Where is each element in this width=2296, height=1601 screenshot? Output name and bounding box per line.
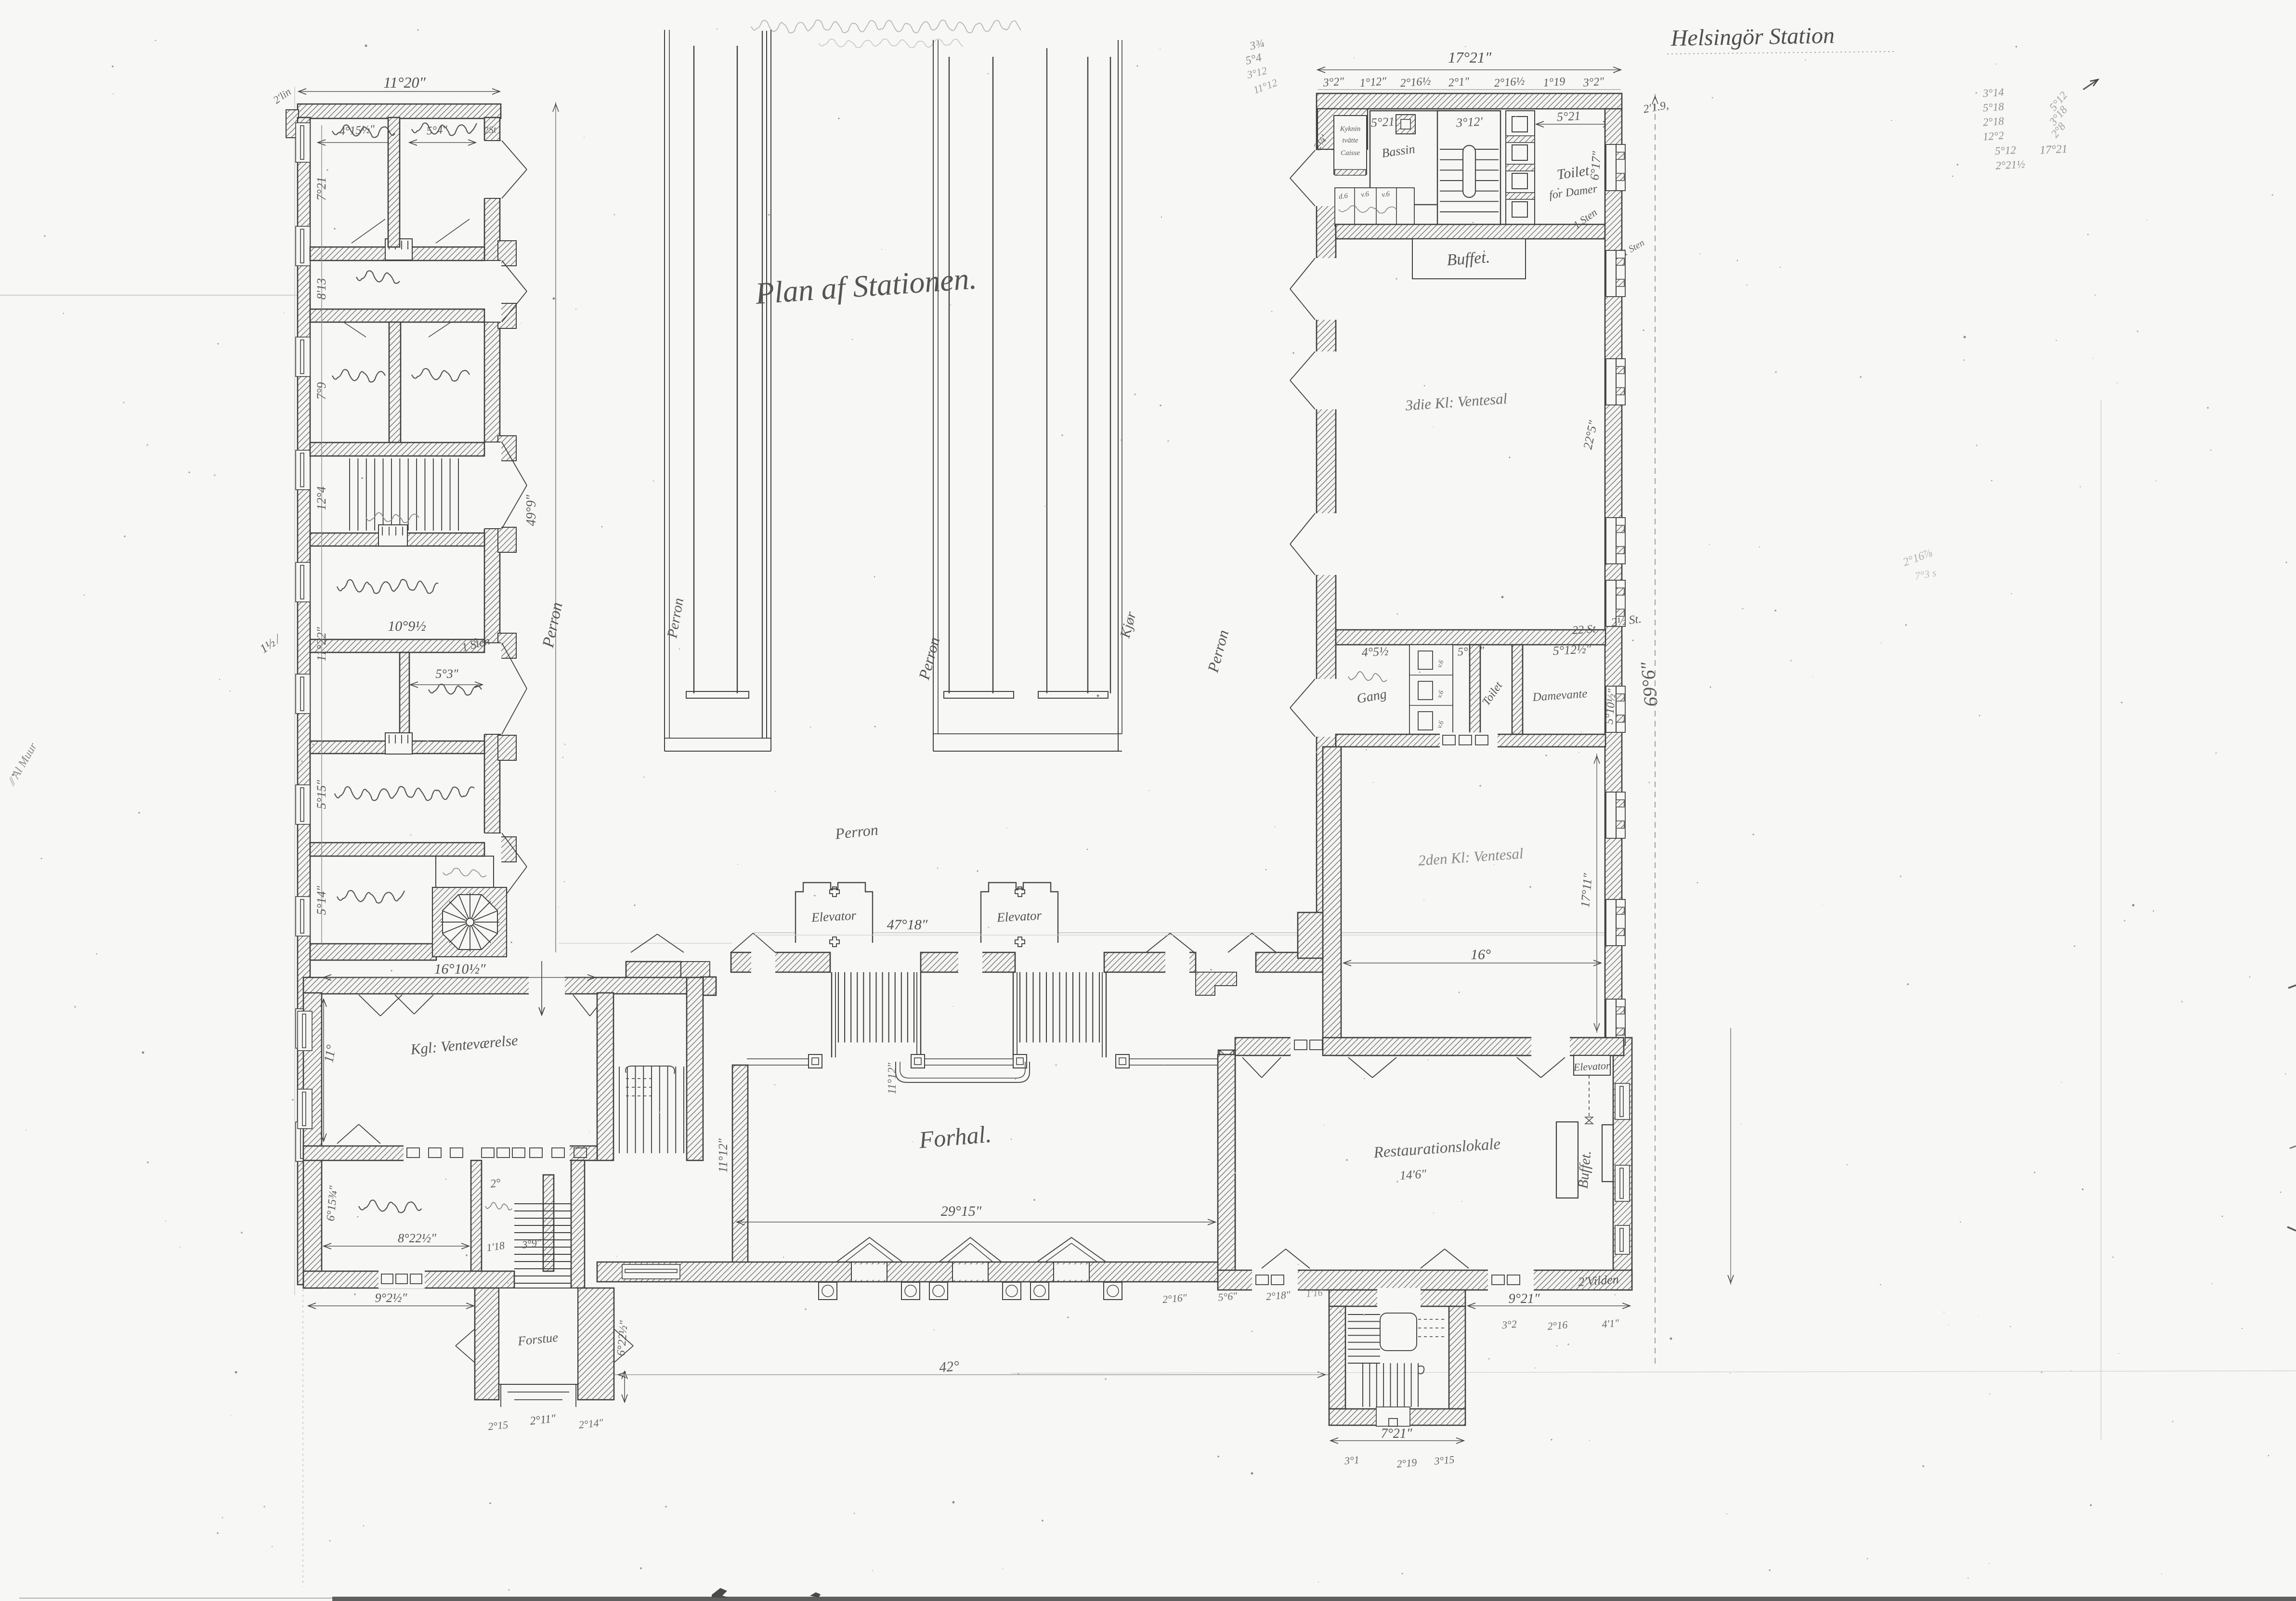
svg-text:Toilet: Toilet: [1480, 679, 1505, 708]
svg-text:3die Kl: Ventesal: 3die Kl: Ventesal: [1404, 390, 1508, 414]
svg-text:tvätte: tvätte: [1342, 137, 1358, 144]
svg-text:5°14″: 5°14″: [314, 885, 328, 915]
svg-text:Damevante: Damevante: [1532, 687, 1588, 704]
svg-text:3°9″: 3°9″: [521, 1236, 542, 1251]
svg-text:3°15: 3°15: [1433, 1453, 1455, 1467]
svg-text:11°12: 11°12: [1252, 76, 1279, 96]
svg-text:2°14″: 2°14″: [578, 1416, 604, 1431]
svg-text:17°21: 17°21: [2039, 143, 2068, 157]
svg-text:47°18″: 47°18″: [887, 917, 928, 933]
svg-text:2°15: 2°15: [487, 1419, 509, 1432]
svg-text:2°18: 2°18: [1983, 115, 2005, 128]
svg-text:Kyknin: Kyknin: [1340, 125, 1361, 133]
svg-text:14'6″: 14'6″: [1399, 1167, 1427, 1183]
svg-text:12°2: 12°2: [1983, 130, 2004, 143]
svg-text:49°9″: 49°9″: [524, 495, 539, 526]
svg-text:2°: 2°: [490, 1177, 502, 1191]
svg-text:for Damer: for Damer: [1548, 182, 1598, 202]
svg-text:Kgl: Venteværelse: Kgl: Venteværelse: [409, 1031, 519, 1057]
svg-text:2°18″: 2°18″: [1265, 1289, 1291, 1302]
svg-text:11°12″: 11°12″: [886, 1062, 899, 1094]
svg-text:17°11″: 17°11″: [1578, 872, 1595, 908]
svg-text:29°15″: 29°15″: [941, 1203, 982, 1219]
svg-text:1°12″: 1°12″: [1359, 75, 1387, 90]
svg-text:42°: 42°: [939, 1358, 960, 1376]
svg-text:Elevator: Elevator: [1573, 1059, 1610, 1073]
svg-text:17°21″: 17°21″: [1448, 49, 1492, 66]
svg-text:v.6: v.6: [1381, 190, 1390, 199]
svg-text:Perron: Perron: [915, 635, 943, 682]
svg-text:7°9: 7°9: [314, 382, 328, 400]
svg-text:5°4″: 5°4″: [426, 123, 448, 137]
svg-text:8'13: 8'13: [314, 278, 328, 300]
svg-text:v.6: v.6: [1360, 190, 1370, 199]
svg-text:1½ ⁄: 1½ ⁄: [257, 631, 284, 656]
svg-text:3°12': 3°12': [1455, 115, 1483, 130]
svg-text:Forhal.: Forhal.: [917, 1120, 992, 1154]
svg-text:5°15″: 5°15″: [314, 780, 328, 809]
svg-text:5°21: 5°21: [1370, 115, 1395, 130]
svg-text:2'Vilden: 2'Vilden: [1578, 1272, 1619, 1289]
svg-text:Helsingör Station: Helsingör Station: [1670, 23, 1835, 51]
svg-text:6°17″: 6°17″: [1587, 150, 1604, 181]
svg-text:10°9½: 10°9½: [388, 618, 426, 634]
svg-text:2°16½: 2°16½: [1494, 75, 1525, 90]
svg-text:5°21: 5°21: [1556, 109, 1581, 124]
svg-text:3°2: 3°2: [1501, 1318, 1517, 1331]
svg-text:5°4: 5°4: [1244, 52, 1263, 67]
svg-text:5°18: 5°18: [1983, 100, 2005, 114]
svg-text:Kjør: Kjør: [1117, 610, 1139, 640]
svg-text:9°2½″: 9°2½″: [375, 1291, 408, 1305]
svg-text:Caisse: Caisse: [1341, 149, 1360, 157]
svg-text:22 St: 22 St: [1572, 623, 1597, 637]
svg-text:1'18: 1'18: [486, 1239, 506, 1254]
svg-text:22°5″: 22°5″: [1580, 419, 1600, 451]
svg-text:4'1″: 4'1″: [1601, 1316, 1620, 1330]
svg-text:5°3″: 5°3″: [435, 667, 458, 681]
svg-text:6°22½″: 6°22½″: [615, 1320, 630, 1357]
svg-text:4°5½: 4°5½: [1361, 644, 1389, 660]
svg-text:16°: 16°: [1471, 947, 1491, 963]
svg-text:3°2″: 3°2″: [1582, 75, 1605, 89]
svg-text:11°20″: 11°20″: [383, 74, 426, 91]
svg-text:3°2″: 3°2″: [1322, 75, 1345, 89]
svg-text:11°22″: 11°22″: [314, 626, 328, 661]
svg-text:2°16⅞: 2°16⅞: [1901, 547, 1934, 569]
svg-text:2°16″: 2°16″: [1162, 1291, 1188, 1305]
svg-text:1'16: 1'16: [1305, 1288, 1323, 1300]
svg-text:Perron: Perron: [1204, 628, 1232, 675]
svg-text:1 Sten: 1 Sten: [1620, 237, 1646, 259]
svg-text:Plan af Stationen.: Plan af Stationen.: [754, 261, 978, 311]
svg-text:Gang: Gang: [1356, 687, 1388, 706]
svg-text:3°1: 3°1: [1344, 1454, 1360, 1467]
svg-text:2St: 2St: [483, 124, 496, 136]
svg-text:7°3 s: 7°3 s: [1914, 566, 1937, 582]
svg-text:2°19: 2°19: [1396, 1456, 1417, 1470]
svg-text:Toilet: Toilet: [1556, 162, 1591, 182]
svg-text:7°21: 7°21: [314, 177, 328, 200]
svg-text:2'lin: 2'lin: [271, 85, 293, 106]
svg-text:2den Kl: Ventesal: 2den Kl: Ventesal: [1418, 845, 1524, 869]
svg-text:16°10½″: 16°10½″: [434, 961, 486, 977]
svg-text:9°21″: 9°21″: [1509, 1291, 1540, 1306]
svg-text:Buffet.: Buffet.: [1575, 1150, 1594, 1189]
svg-text:Perron: Perron: [539, 600, 566, 650]
svg-text:2°11″: 2°11″: [529, 1412, 557, 1428]
svg-text:3°14: 3°14: [1982, 86, 2004, 100]
svg-text:7°21″: 7°21″: [1381, 1426, 1412, 1441]
svg-text:5°12½″: 5°12½″: [1552, 642, 1592, 658]
svg-text:11°12″: 11°12″: [716, 1138, 730, 1172]
svg-text:Restaurationslokale: Restaurationslokale: [1372, 1135, 1501, 1161]
svg-text:3¾: 3¾: [1248, 37, 1265, 53]
svg-text:⁄⁄ Al Muur: ⁄⁄ Al Muur: [5, 741, 39, 789]
svg-text:8°22½″: 8°22½″: [398, 1231, 437, 1245]
svg-text:2'1.9,: 2'1.9,: [1642, 99, 1670, 116]
svg-text:12°4: 12°4: [314, 486, 328, 510]
svg-text:Perron: Perron: [664, 597, 687, 639]
svg-text:d.6: d.6: [1338, 192, 1348, 201]
svg-text:Elevator: Elevator: [810, 908, 857, 925]
svg-text:69°6″: 69°6″: [1636, 661, 1662, 708]
svg-text:2°16½: 2°16½: [1400, 75, 1431, 90]
svg-text:2°1″: 2°1″: [1448, 75, 1470, 89]
svg-text:1°19: 1°19: [1543, 75, 1565, 89]
svg-text:2°16: 2°16: [1547, 1318, 1568, 1332]
svg-text:5°6″: 5°6″: [1217, 1289, 1238, 1303]
svg-text:Elevator: Elevator: [996, 908, 1042, 925]
svg-text:6°15¾″: 6°15¾″: [325, 1185, 340, 1222]
svg-text:2°21½: 2°21½: [1996, 158, 2025, 171]
svg-text:Perron: Perron: [834, 820, 879, 842]
svg-text:5°12: 5°12: [1995, 144, 2016, 157]
